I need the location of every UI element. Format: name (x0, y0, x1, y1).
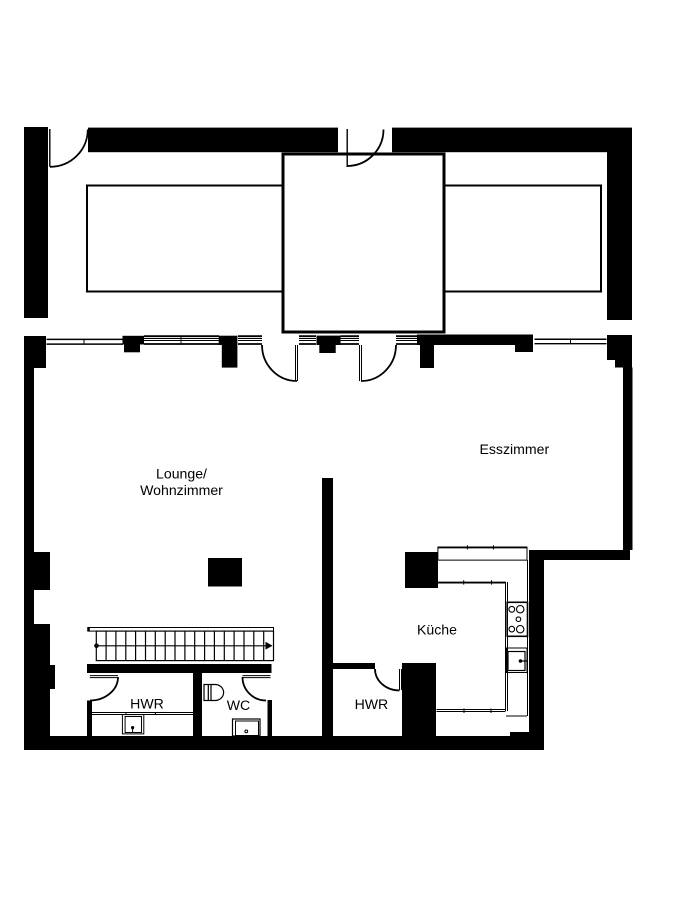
svg-text:WC: WC (227, 697, 250, 713)
svg-text:Küche: Küche (417, 622, 457, 638)
svg-text:Esszimmer: Esszimmer (479, 441, 549, 457)
svg-text:HWR: HWR (130, 695, 164, 711)
svg-text:Wohnzimmer: Wohnzimmer (140, 482, 223, 498)
svg-text:Lounge/: Lounge/ (156, 466, 207, 482)
svg-text:HWR: HWR (355, 696, 389, 712)
